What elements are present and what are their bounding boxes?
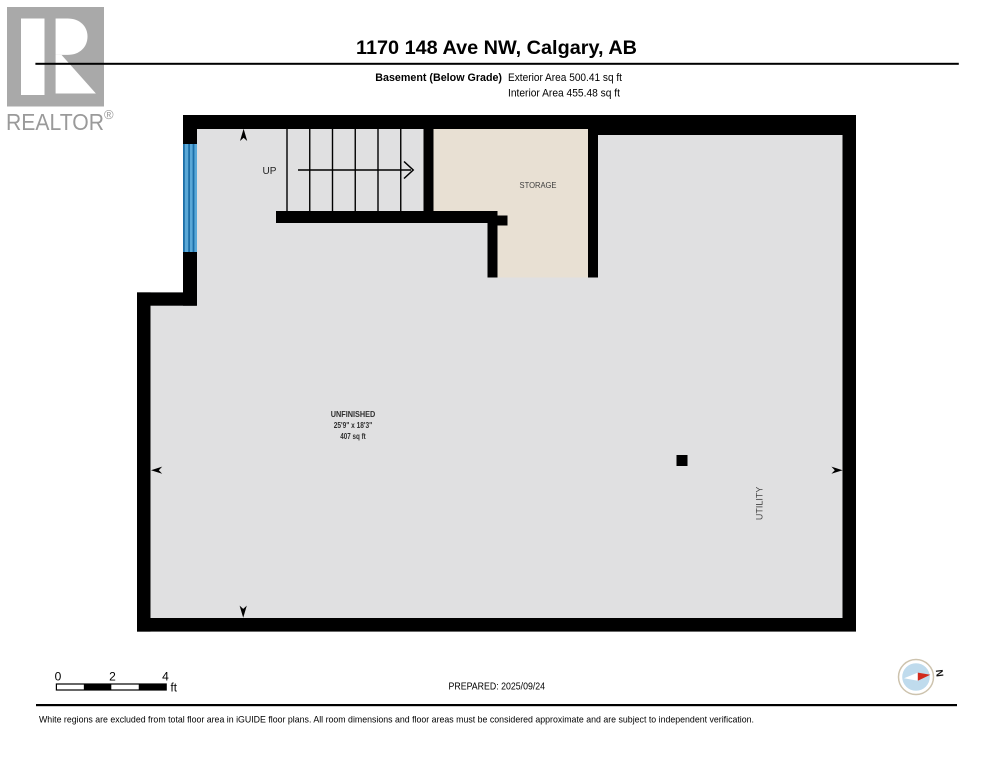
- svg-text:Exterior Area 500.41 sq ft: Exterior Area 500.41 sq ft: [508, 72, 622, 84]
- svg-text:Basement (Below Grade): Basement (Below Grade): [375, 72, 502, 84]
- svg-text:UNFINISHED: UNFINISHED: [331, 410, 376, 419]
- svg-text:Interior Area 455.48 sq ft: Interior Area 455.48 sq ft: [508, 87, 620, 99]
- svg-text:1170 148 Ave NW, Calgary, AB: 1170 148 Ave NW, Calgary, AB: [356, 37, 637, 59]
- svg-text:STORAGE: STORAGE: [520, 180, 557, 190]
- svg-text:REALTOR: REALTOR: [6, 109, 104, 135]
- svg-text:4: 4: [162, 670, 169, 684]
- svg-text:25'9" x 18'3": 25'9" x 18'3": [334, 421, 373, 430]
- svg-text:UTILITY: UTILITY: [755, 487, 765, 521]
- svg-text:N: N: [933, 669, 945, 678]
- svg-text:0: 0: [55, 670, 62, 684]
- svg-text:ft: ft: [171, 683, 178, 695]
- svg-text:White regions are excluded fro: White regions are excluded from total fl…: [39, 715, 754, 725]
- svg-text:UP: UP: [263, 166, 277, 177]
- svg-text:PREPARED: 2025/09/24: PREPARED: 2025/09/24: [449, 680, 546, 692]
- svg-text:407 sq ft: 407 sq ft: [340, 432, 366, 441]
- svg-text:®: ®: [104, 107, 114, 122]
- svg-text:2: 2: [109, 670, 116, 684]
